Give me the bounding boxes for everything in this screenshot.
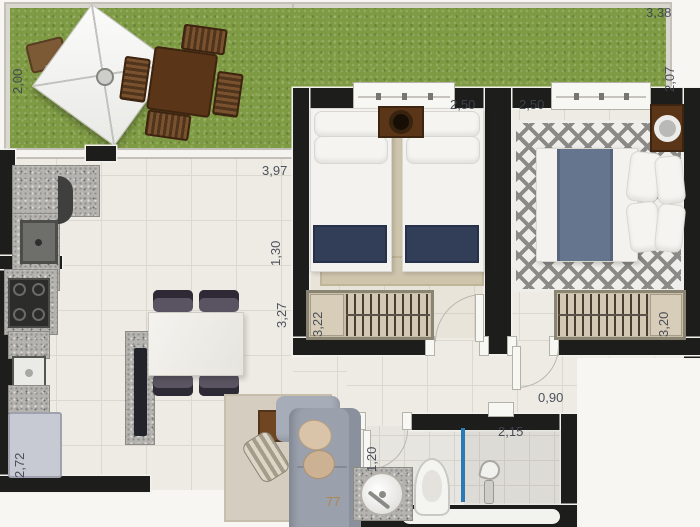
garden-grass-right: [296, 8, 666, 88]
dining-table: [148, 312, 244, 376]
bath-door-jamb-right: [402, 412, 412, 430]
bath-sink-drain: [379, 491, 386, 498]
dim-hall-width: 0,90: [538, 390, 563, 405]
dim-kitchen-length: 2,72: [12, 434, 27, 478]
kitchen-sink: [20, 220, 58, 264]
dim-garden-width: 3,38: [646, 5, 671, 20]
bedroom1-wardrobe-rod: [346, 314, 430, 316]
shower-glass-divider: [461, 428, 465, 502]
garden-chair-left: [119, 56, 151, 103]
bedroom1-wardrobe-clothes: [346, 294, 430, 336]
dim-bath-door-width: 1,20: [364, 428, 379, 472]
bedroom2-wardrobe-rod: [558, 314, 648, 316]
wall-right-outer: [684, 88, 700, 358]
dim-bedroom1-length: 3,22: [310, 293, 325, 337]
wall-terrace-stub: [86, 146, 116, 161]
parasol-pole: [96, 68, 114, 86]
dim-bedroom2-length: 3,20: [656, 293, 671, 337]
tv: [134, 348, 147, 436]
sink-drain: [35, 239, 42, 246]
dining-chair-3: [153, 374, 193, 396]
dim-bedroom2-width: 2,50: [519, 97, 544, 112]
dim-living-length: 3,27: [274, 282, 289, 328]
toilet: [414, 458, 450, 516]
stove: [8, 278, 50, 328]
dim-bedroom1-width: 2,50: [450, 97, 475, 112]
bedroom2-shelf: [650, 104, 684, 152]
bedroom1-window-handle-1: [376, 93, 381, 100]
bed-double-pillow-2: [654, 155, 687, 206]
bed1-pillow-b: [314, 136, 388, 164]
wall-bottom-left: [0, 476, 150, 492]
terrace-sliding-door: [8, 148, 296, 159]
bath-sink: [360, 472, 404, 516]
stove-burner-2: [32, 283, 45, 296]
bedroom1-nightstand: [378, 106, 424, 138]
dim-garden-depth-left: 2,00: [10, 48, 25, 94]
bed-double-runner: [557, 149, 613, 261]
bedroom1-window-handle-3: [428, 93, 433, 100]
toilet-bowl: [422, 470, 442, 502]
kitchen-counter-top: [13, 166, 99, 216]
bedroom2-fan: [654, 115, 681, 142]
kitchen-counter-lower-2: [9, 386, 49, 412]
bedroom2-window-handle-2: [599, 93, 604, 100]
laundry-tank: [12, 356, 46, 388]
wall-between-bedrooms: [485, 88, 511, 354]
garden-dining-set: [114, 16, 251, 150]
bed1-runner-navy: [313, 225, 387, 263]
nightstand-speaker: [389, 110, 413, 134]
bedroom1-window-handle-2: [402, 93, 407, 100]
floor-plan: 2,00 3,38 2,07 3,97 1,30 3,27 2,50 2,50 …: [0, 0, 700, 527]
dim-garden-depth-right: 2,07: [662, 46, 677, 92]
dining-chair-1: [153, 290, 193, 312]
bed-double-pillow-4: [654, 203, 687, 254]
stove-burner-3: [13, 308, 26, 321]
bedroom2-window-handle-3: [624, 93, 629, 100]
dining-chair-4: [199, 374, 239, 396]
bed2-pillow-b: [406, 136, 480, 164]
dim-sofa-partial: 77: [326, 494, 340, 509]
garden-table: [146, 46, 218, 118]
bedroom2-window: [551, 82, 651, 110]
stove-burner-4: [32, 308, 45, 321]
bedroom1-wardrobe: [306, 290, 434, 340]
dim-living-width: 3,97: [262, 163, 287, 178]
bedroom2-window-handle-1: [574, 93, 579, 100]
hall-frame-stub: [488, 402, 514, 417]
shower-column: [484, 480, 494, 504]
stove-burner-1: [13, 283, 26, 296]
bedroom1-door-leaf: [475, 294, 484, 342]
shower-zone: [464, 430, 561, 505]
kitchen-wall-fan: [58, 176, 73, 224]
bedroom2-wardrobe-clothes: [558, 294, 648, 336]
dining-chair-2: [199, 290, 239, 312]
wall-bedroom1-bottom: [293, 338, 433, 355]
wall-bedroom2-bottom: [553, 338, 700, 355]
bedroom2-door-leaf: [512, 346, 521, 390]
kitchen-counter-lower: [9, 332, 49, 358]
dim-kitchen-opening: 1,30: [268, 220, 283, 266]
bed2-runner-navy: [405, 225, 479, 263]
bed1-pillow-a: [314, 111, 388, 137]
bed-double: [536, 148, 638, 262]
garden-chair-right: [212, 71, 244, 118]
dim-bath-width: 2,15: [498, 424, 523, 439]
laundry-tank-drain: [25, 369, 33, 377]
